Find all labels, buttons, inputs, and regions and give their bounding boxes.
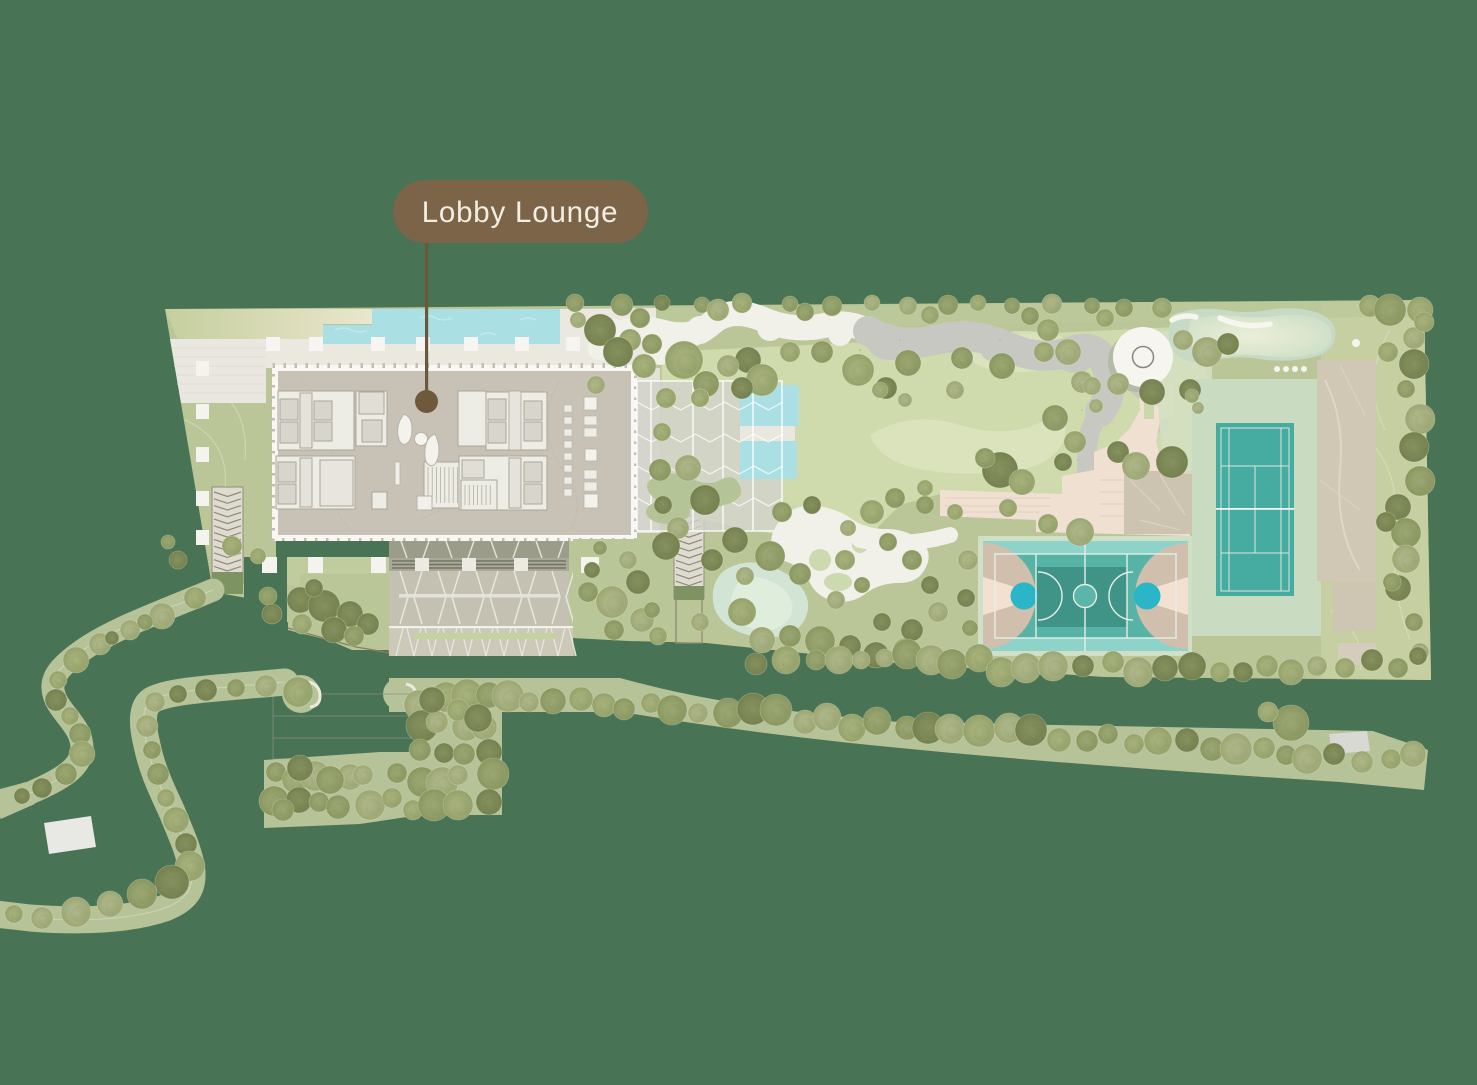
svg-text:Lobby Lounge: Lobby Lounge	[422, 196, 619, 229]
